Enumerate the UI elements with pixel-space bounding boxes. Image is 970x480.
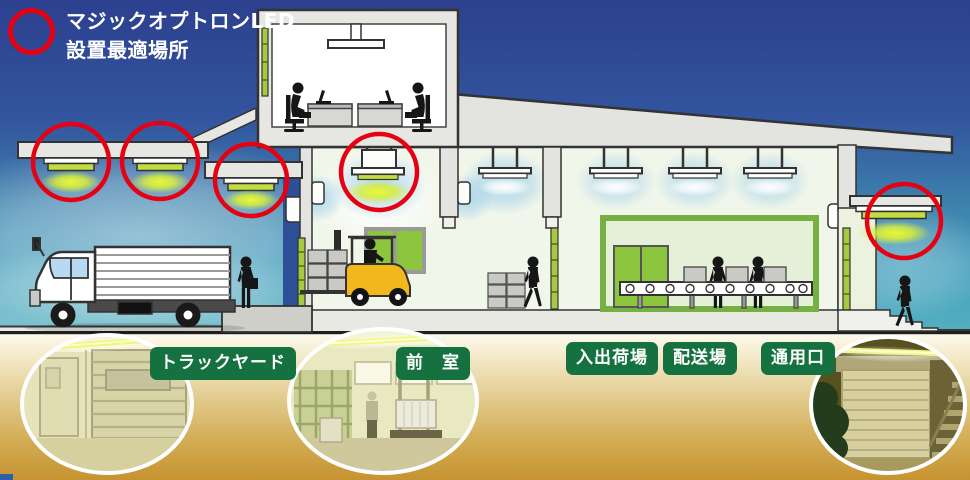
boxes-on-conveyor <box>684 267 786 282</box>
legend-line-2: 設置最適場所 <box>66 36 295 65</box>
downpipe-right <box>843 228 850 311</box>
downpipe-left <box>298 238 305 309</box>
downpipe-center <box>551 228 558 309</box>
infographic-canvas: マジックオプトロンLED 設置最適場所 トラックヤード 前 室 入出荷場 配送場… <box>0 0 970 480</box>
led-canopy-lamp <box>223 178 279 210</box>
conveyor-room <box>603 218 816 309</box>
area-label-delivery-area: 配送場 <box>663 342 737 375</box>
stacked-boxes <box>488 273 525 308</box>
area-label-front-room: 前 室 <box>396 347 470 380</box>
legend: マジックオプトロンLED 設置最適場所 <box>8 7 295 65</box>
windshield <box>50 258 88 278</box>
area-label-service-entrance: 通用口 <box>761 342 835 375</box>
warehouse-cross-section-illustration <box>0 0 970 480</box>
area-label-loading-dock: 入出荷場 <box>566 342 658 375</box>
area-label-truck-yard: トラックヤード <box>150 347 296 380</box>
led-canopy-lamp <box>130 158 190 193</box>
red-circle-marker-icon <box>8 8 55 55</box>
legend-text: マジックオプトロンLED 設置最適場所 <box>66 7 295 65</box>
legend-line-1: マジックオプトロンLED <box>66 7 295 36</box>
forklift-load <box>308 250 347 291</box>
led-canopy-lamp <box>41 158 101 193</box>
right-canopy <box>850 196 941 206</box>
clipboard <box>250 278 258 289</box>
